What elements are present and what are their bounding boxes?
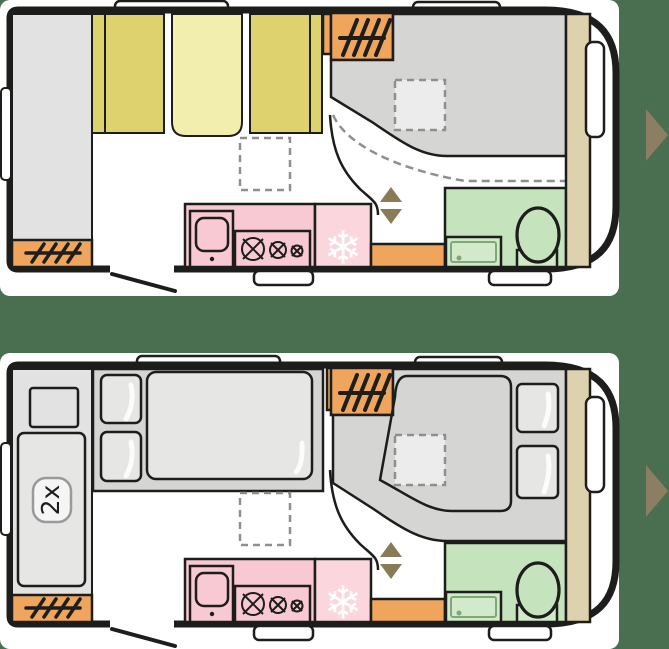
heater: [12, 595, 92, 622]
toilet: [517, 208, 559, 267]
bathroom: [445, 543, 566, 622]
cabinet-orange: [371, 244, 445, 267]
bathroom: [445, 188, 566, 267]
snowflake-icon: ❄: [324, 221, 363, 275]
toilet: [517, 563, 559, 622]
shower-tray: [446, 237, 501, 267]
seat-cushion: [105, 14, 164, 133]
kitchen: [185, 559, 315, 622]
floorplan-stage: ❄: [0, 0, 669, 649]
table-dashed: [240, 138, 290, 190]
skylight-dashed: [395, 80, 445, 130]
backrest: [310, 14, 322, 133]
lounge-seat: [12, 14, 92, 240]
window-left: [1, 443, 11, 535]
entry-step: [489, 271, 551, 285]
front-locker-door: [586, 42, 604, 137]
seat-cushion: [250, 14, 310, 133]
pillow: [101, 432, 141, 481]
window-left: [1, 88, 11, 180]
drain: [457, 611, 462, 616]
front-locker-door: [586, 397, 604, 492]
fridge: ❄: [315, 559, 371, 630]
backrest: [92, 14, 105, 133]
pillow: [517, 446, 558, 498]
bunk-count-label: 2x: [36, 485, 65, 516]
sink: [196, 573, 228, 606]
snowflake-icon: ❄: [324, 576, 363, 630]
heater: [331, 13, 393, 60]
entry-step: [254, 626, 313, 640]
heater: [331, 368, 393, 415]
next-arrow-day[interactable]: [646, 109, 668, 161]
seat-cushion: [172, 14, 242, 136]
entry-step: [254, 271, 313, 285]
heater: [12, 240, 92, 267]
tap: [210, 612, 214, 616]
entry-step: [489, 626, 551, 640]
shower-tray: [446, 592, 501, 622]
fridge: ❄: [315, 204, 371, 275]
drain: [457, 256, 462, 261]
mattress: [147, 372, 312, 479]
tap: [210, 257, 214, 261]
floorplan-night: 2x: [1, 356, 616, 646]
bench-cushions: [92, 14, 322, 136]
bunk-count-badge: 2x: [33, 478, 71, 522]
skylight-dashed: [395, 435, 445, 485]
kitchen: [185, 204, 315, 267]
floorplan-day: ❄: [1, 1, 616, 291]
pillow: [517, 384, 558, 432]
cabinet-orange: [371, 599, 445, 622]
sink: [196, 218, 228, 251]
double-bed: [93, 369, 323, 491]
next-arrow-night[interactable]: [646, 465, 668, 517]
pillow: [101, 375, 141, 423]
table-dashed: [240, 493, 290, 545]
